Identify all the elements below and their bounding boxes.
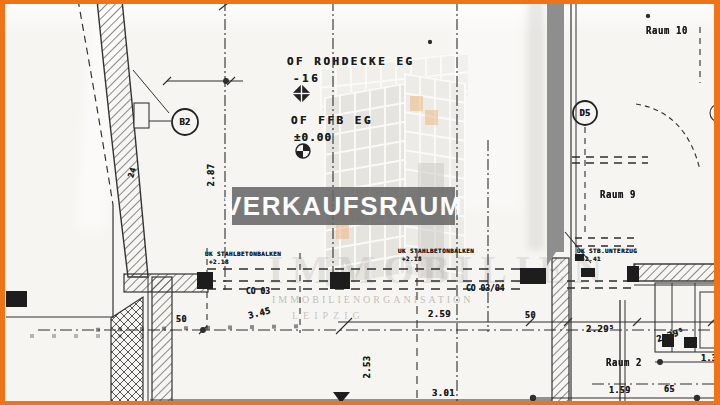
dim-2-87: 2.87 <box>206 160 216 190</box>
level-ffb-label: OF FFB EG <box>291 114 373 127</box>
beam-level-1: +2.18 <box>209 258 229 265</box>
beam-label-1: UK STAHLBETONBALKEN <box>205 250 281 257</box>
dim-50-mid: 50 <box>525 310 536 320</box>
door-swing-arcs <box>636 104 720 170</box>
co-label-2: CO 03/04 <box>466 284 505 293</box>
dim-50-left: 50 <box>176 314 187 324</box>
beam-level-2: +2.18 <box>402 255 422 262</box>
verkaufsraum-banner-label: VERKAUFSRAUM <box>224 191 463 222</box>
dim-2-59: 2.59 <box>428 309 451 319</box>
outer-curved-wall <box>78 0 171 318</box>
level-rohdecke-value: -16 <box>293 72 320 85</box>
dim-2-53: 2.53 <box>362 352 372 382</box>
beam-label-3: UK STB.UNTERZUG <box>577 247 637 254</box>
axis-marker-d5: D5 <box>576 108 594 118</box>
level-ffb-value: ±0.00 <box>294 131 332 144</box>
level-rohdecke-label: OF ROHDECKE EG <box>287 55 415 68</box>
axis-marker-b2: B2 <box>175 117 195 127</box>
axis-marker-circles <box>172 101 597 135</box>
beam-level-3: +2.41 <box>581 255 601 262</box>
scan-artifact-bar <box>547 0 564 252</box>
verkaufsraum-banner: VERKAUFSRAUM <box>232 187 455 225</box>
dim-3-01: 3.01 <box>432 388 455 398</box>
beam-label-2: UK STAHLBETONBALKEN <box>398 247 474 254</box>
floor-plan-scan: IMMOBILIEN IMMOBILIENORGANISATION LEIPZI… <box>0 0 720 405</box>
room-label-raum2: Raum 2 <box>606 358 642 369</box>
dim-1-35: 1.35 <box>701 353 720 363</box>
dim-2-29: 2.29⁵ <box>586 324 615 334</box>
scan-artifact-bar-tail <box>547 252 564 266</box>
dim-65: 65 <box>664 384 675 394</box>
room-label-raum9: Raum 9 <box>600 190 636 201</box>
co-label-1: CO 03 <box>246 287 270 296</box>
faint-handwriting-smudge <box>30 334 150 338</box>
room-label-raum10: Raum 10 <box>646 26 688 37</box>
dim-1-59: 1.59 <box>609 385 631 395</box>
lower-left-walls <box>6 274 208 405</box>
